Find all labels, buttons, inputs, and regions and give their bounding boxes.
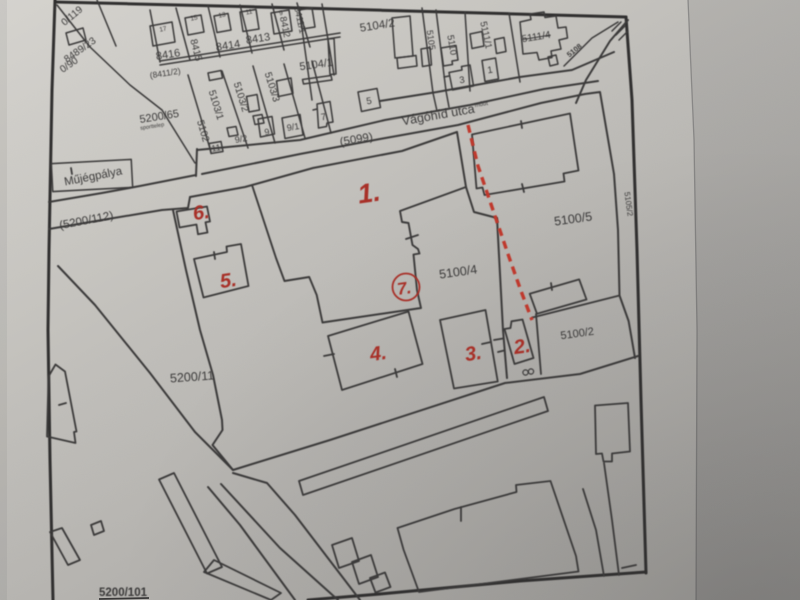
svg-text:2.: 2. [511,335,532,359]
svg-text:5.: 5. [218,269,238,293]
svg-text:11: 11 [211,142,222,153]
svg-text:4.: 4. [367,342,388,366]
svg-text:9/1: 9/1 [286,121,300,133]
svg-text:9/2: 9/2 [234,133,248,145]
svg-text:5200/101: 5200/101 [99,587,148,599]
svg-text:6.: 6. [191,201,211,225]
svg-text:1.: 1. [356,177,382,210]
svg-text:3.: 3. [463,342,483,366]
svg-text:7.: 7. [396,278,413,299]
